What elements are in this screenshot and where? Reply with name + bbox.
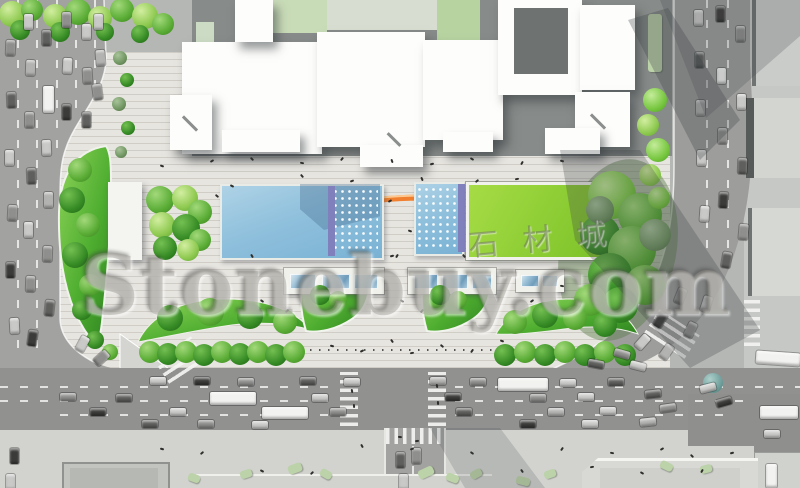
car: [60, 393, 76, 401]
tree: [648, 187, 670, 209]
building-corner-nw: [235, 0, 273, 42]
car: [26, 276, 36, 292]
courtyard-paving: [327, 0, 437, 30]
pedestrian-mark: [353, 404, 355, 408]
tree: [72, 300, 92, 320]
car: [764, 430, 780, 438]
tree: [554, 341, 576, 363]
tree: [494, 344, 516, 366]
tree: [449, 291, 467, 309]
car: [5, 150, 14, 166]
car: [198, 420, 214, 428]
tree: [120, 73, 134, 87]
car: [83, 68, 93, 84]
car: [210, 392, 256, 405]
building-wing-b: [317, 32, 425, 147]
car: [10, 448, 19, 464]
car: [738, 224, 748, 241]
tree: [273, 310, 297, 334]
car: [640, 417, 657, 427]
tree: [157, 305, 183, 331]
car: [170, 408, 186, 416]
car: [26, 60, 36, 76]
tree: [430, 285, 450, 305]
tree: [196, 298, 224, 326]
site-plan-rendering: 石材城 Stonebuy.com: [0, 0, 800, 488]
tree: [112, 97, 126, 111]
car: [695, 52, 704, 68]
building-wing-e: [580, 5, 635, 90]
tree: [149, 212, 175, 238]
car: [445, 393, 461, 401]
car: [716, 6, 725, 22]
car: [399, 474, 408, 488]
car: [470, 378, 486, 386]
car: [697, 150, 706, 166]
tree: [637, 114, 659, 136]
car: [24, 222, 33, 238]
bush: [648, 14, 662, 72]
car: [736, 26, 745, 42]
car: [90, 408, 106, 416]
pedestrian-mark: [610, 452, 614, 455]
purple-divider-west: [328, 186, 335, 256]
tree: [586, 196, 614, 224]
car: [6, 474, 15, 488]
fountain-jets-west: [332, 188, 378, 252]
glass-pane: [521, 275, 539, 287]
car: [396, 452, 405, 468]
tree: [76, 213, 100, 237]
tree: [177, 239, 199, 261]
car: [738, 158, 748, 174]
car: [43, 246, 53, 262]
car: [63, 58, 73, 74]
tree: [593, 313, 617, 337]
car: [300, 377, 316, 385]
car: [94, 14, 103, 30]
car: [62, 12, 71, 28]
tree: [146, 186, 174, 214]
tree: [113, 51, 127, 65]
car: [95, 50, 105, 67]
car: [150, 377, 166, 385]
car: [737, 94, 746, 110]
glass-pane: [290, 274, 316, 289]
car: [44, 300, 55, 317]
tree: [62, 242, 88, 268]
tree: [237, 303, 263, 329]
purple-divider-east: [458, 184, 465, 252]
car: [27, 168, 37, 184]
car: [582, 420, 598, 428]
car: [42, 30, 51, 46]
building-bay-3: [443, 132, 493, 152]
car: [8, 205, 18, 221]
tree: [532, 302, 558, 328]
building-wing-c: [423, 40, 503, 140]
car: [116, 394, 132, 402]
car: [530, 394, 546, 402]
car: [238, 378, 254, 386]
car: [25, 112, 34, 128]
car: [344, 378, 360, 386]
building-bay-2: [222, 130, 300, 152]
car: [694, 10, 703, 26]
west-canopy-structure: [108, 182, 142, 260]
pedestrian-mark: [560, 285, 564, 288]
car: [412, 448, 421, 464]
tree: [79, 274, 101, 296]
car: [10, 318, 20, 334]
car: [312, 394, 328, 402]
tree: [131, 25, 149, 43]
car: [6, 40, 16, 56]
pedestrian-mark: [300, 162, 304, 165]
building-porch: [360, 145, 423, 167]
car: [252, 421, 268, 429]
tree: [68, 158, 92, 182]
tree: [563, 306, 587, 330]
tree: [59, 187, 85, 213]
building-se-corner: [754, 452, 800, 488]
car: [7, 92, 17, 108]
car: [430, 377, 446, 385]
courtyard-green-east: [437, 0, 480, 43]
tree: [534, 344, 556, 366]
car: [142, 420, 158, 428]
car: [719, 192, 729, 208]
car: [645, 389, 662, 399]
car: [520, 420, 536, 428]
building-ne-corner: [752, 0, 800, 86]
car: [608, 378, 624, 386]
car: [24, 14, 33, 30]
pedestrian-mark: [351, 389, 354, 393]
pedestrian-mark: [415, 440, 419, 442]
pedestrian-mark: [398, 436, 402, 438]
tree: [639, 164, 661, 186]
car: [330, 408, 346, 416]
car: [699, 206, 709, 223]
tree: [646, 138, 670, 162]
building-east-1: [746, 98, 800, 178]
tree: [503, 310, 527, 334]
car: [600, 407, 616, 415]
building-east-2: [748, 208, 800, 296]
car: [262, 407, 308, 419]
car: [44, 192, 53, 208]
building-bay-4: [545, 128, 600, 154]
glass-pane: [542, 275, 558, 287]
tree: [643, 88, 667, 112]
lawn-panel: [466, 182, 604, 260]
tree: [153, 236, 177, 260]
building-sw-roof: [70, 468, 158, 488]
car: [456, 408, 472, 416]
courtyard-green-west: [267, 0, 327, 33]
tree: [115, 146, 127, 158]
car: [62, 104, 71, 120]
tree: [639, 219, 671, 251]
car: [82, 24, 91, 40]
tree: [514, 341, 536, 363]
car: [718, 128, 727, 144]
car: [717, 68, 726, 84]
glass-pane: [472, 274, 492, 289]
tree: [121, 121, 135, 135]
pedestrian-mark: [436, 384, 439, 388]
car: [766, 464, 777, 488]
car: [548, 408, 564, 416]
tree: [310, 285, 330, 305]
car: [560, 379, 576, 387]
tree: [283, 341, 305, 363]
tree: [329, 291, 347, 309]
tree: [152, 13, 174, 35]
car: [760, 406, 798, 419]
inner-courtyard-dark: [514, 8, 568, 74]
car: [498, 378, 548, 391]
glass-pane: [354, 274, 378, 289]
pedestrian-mark: [437, 401, 439, 405]
car: [6, 262, 15, 278]
fountain-jets-east: [416, 186, 458, 248]
car: [43, 86, 54, 113]
car: [696, 100, 705, 116]
car: [194, 377, 210, 385]
car: [578, 393, 594, 401]
car: [82, 112, 91, 128]
car: [42, 140, 52, 156]
